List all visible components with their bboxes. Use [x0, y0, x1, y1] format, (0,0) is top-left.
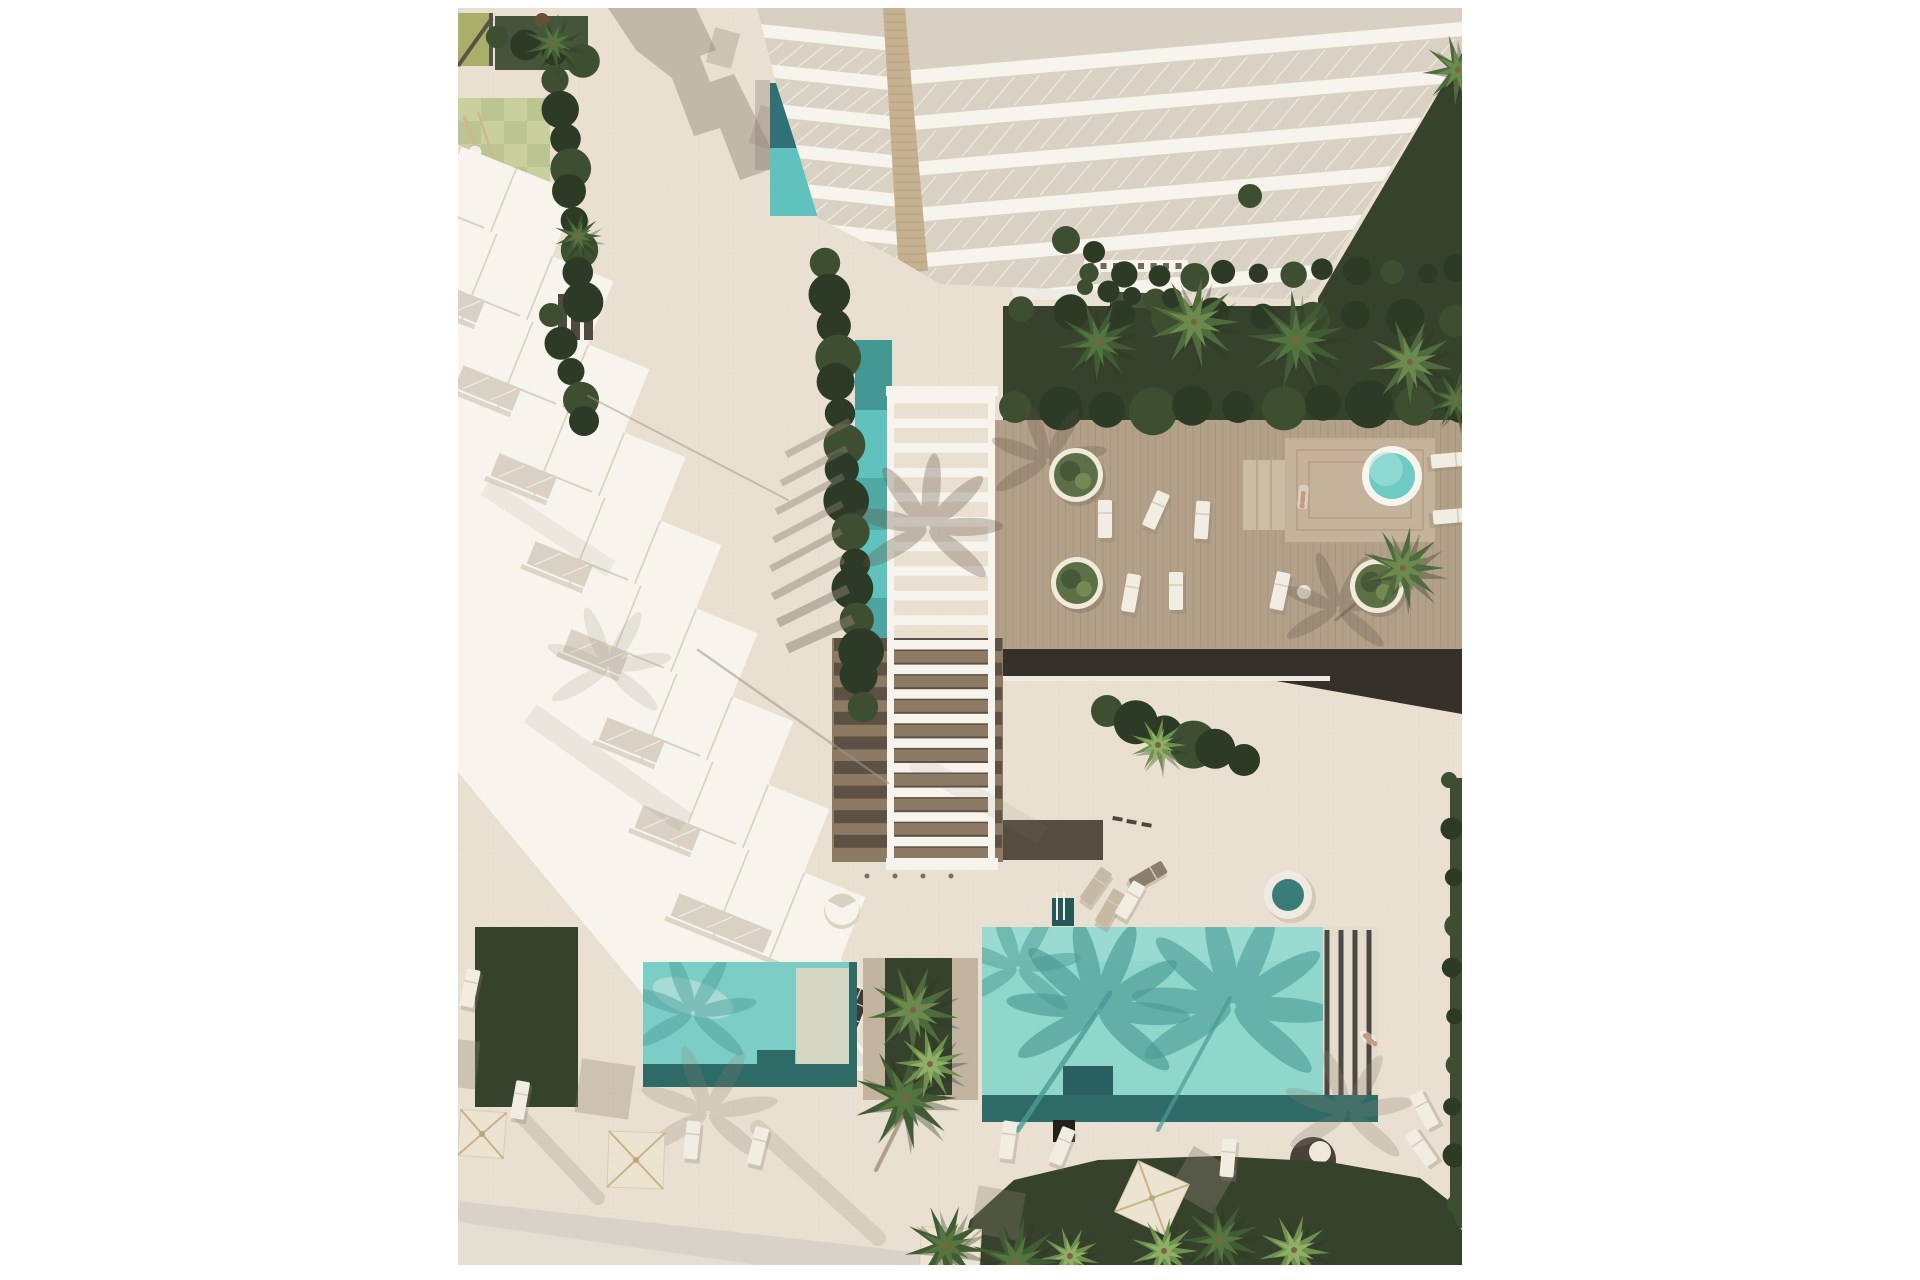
pool-dark-edge	[849, 962, 857, 1087]
palm-crown	[1293, 337, 1299, 343]
sun-lounger	[1169, 572, 1186, 614]
spa-pool-reflection	[1369, 452, 1403, 486]
hedge-bush	[832, 567, 874, 609]
pool-dark-edge	[643, 1064, 857, 1087]
deck-edge-curb	[992, 676, 1330, 681]
lounger-bed	[1169, 572, 1183, 610]
palm-crown	[1067, 1253, 1073, 1259]
palm-crown	[1400, 565, 1406, 571]
hedge-bush	[539, 303, 563, 327]
aerial-rendering	[458, 8, 1462, 1265]
palm-crown	[1191, 319, 1197, 325]
hedge-bush	[1180, 263, 1209, 292]
round-daybed	[824, 891, 860, 929]
palm-crown	[1407, 359, 1413, 365]
palm-crown	[575, 233, 581, 239]
palm-crown	[1217, 1237, 1223, 1243]
sunbather	[1297, 485, 1309, 510]
playground-tile	[527, 121, 550, 144]
hedge-bush	[848, 692, 878, 722]
hedge-bush	[1077, 279, 1093, 295]
planter-plants	[1076, 581, 1092, 597]
balcony-plant	[1238, 184, 1262, 208]
pergola-rung	[887, 738, 995, 748]
hedge-bush	[1442, 958, 1462, 978]
hedge-bush	[1123, 287, 1141, 305]
palm-crown	[1155, 742, 1161, 748]
pergola-rung	[887, 665, 995, 675]
hedge-bush	[1008, 296, 1034, 322]
umbrella	[458, 1109, 507, 1158]
lounger-fold	[1195, 514, 1209, 515]
spa-water	[1272, 879, 1304, 911]
playground-tile	[481, 98, 504, 121]
hedge-bush	[569, 406, 599, 436]
lounger-bed	[1098, 500, 1112, 538]
palm-crown	[927, 1061, 933, 1067]
palm-crown	[1095, 339, 1101, 345]
hedge-bush	[809, 274, 851, 316]
hedge-bush	[1129, 387, 1177, 435]
page-canvas	[0, 0, 1920, 1280]
pergola-rail	[887, 386, 894, 870]
hedge-bush	[563, 282, 604, 323]
pergola-rung	[887, 615, 995, 625]
umbrella-shadow	[575, 1059, 636, 1120]
pergola-rung	[887, 689, 995, 699]
railing-opening	[1138, 263, 1144, 269]
hedge-bush	[558, 358, 585, 385]
hedge-bush	[1443, 1098, 1461, 1116]
hedge-bush	[1418, 264, 1437, 283]
pergola-rung	[887, 812, 995, 822]
hedge-bush	[542, 91, 579, 128]
hedge-bush	[1222, 391, 1254, 423]
playground-tile	[458, 98, 481, 121]
hedge-bush	[1386, 299, 1424, 337]
playground-tile	[527, 144, 550, 167]
playground-tile	[504, 121, 527, 144]
hedge-bush	[1343, 256, 1372, 285]
palm-crown	[1013, 1259, 1019, 1265]
pool-shade	[855, 340, 892, 410]
lounger-bed	[1194, 501, 1211, 540]
hedge-bush	[840, 657, 878, 695]
hedge-bush	[1305, 385, 1341, 421]
pergola-bottom-beam	[886, 858, 998, 870]
hedge-bush	[1446, 1008, 1462, 1024]
hedge-bush	[1149, 265, 1171, 287]
hedge-bush	[1280, 262, 1306, 288]
pergola-rung	[887, 640, 995, 650]
balcony-plant	[1052, 226, 1080, 254]
pergola-rung	[887, 443, 995, 453]
sun-lounger	[1098, 500, 1115, 542]
playground-tile	[504, 98, 527, 121]
pool-steps	[1063, 1066, 1113, 1098]
hedge-bush	[1228, 744, 1260, 776]
pool-step-notch	[757, 1050, 795, 1064]
hedge-bush	[1089, 392, 1125, 428]
hedge-bush	[1341, 301, 1370, 330]
hedge-bush	[1172, 386, 1212, 426]
hedge-bush	[810, 248, 840, 278]
palm-crown	[1291, 1247, 1297, 1253]
palm-crown	[1161, 1248, 1167, 1254]
pergola-rung	[887, 419, 995, 429]
railing-opening	[1176, 263, 1182, 269]
hedge-bush	[1440, 818, 1462, 840]
palm-crown	[1455, 67, 1461, 73]
hedge-bush	[1380, 260, 1404, 284]
pergola-rung	[887, 837, 995, 847]
hedge-bush	[1211, 260, 1235, 284]
planter-plants	[1075, 473, 1091, 489]
pergola-rung	[887, 714, 995, 724]
pool-shelf	[796, 968, 853, 1074]
hedge-bush	[1249, 264, 1268, 283]
umbrella	[607, 1131, 665, 1189]
sun-lounger	[1193, 501, 1213, 544]
deck-steps	[1243, 460, 1285, 530]
post-dot	[865, 874, 870, 879]
palm-crown	[1453, 397, 1459, 403]
hedge-bush	[1345, 380, 1393, 428]
hedge-bush	[817, 363, 855, 401]
hedge-bush	[1262, 386, 1306, 430]
pergola-rung	[887, 394, 995, 404]
lawn-square	[475, 927, 578, 1107]
playground-tile	[504, 144, 527, 167]
post-dot	[893, 874, 898, 879]
hedge-bush	[1311, 258, 1333, 280]
palm-crown	[902, 1095, 908, 1101]
round-chair-cushion	[1309, 1141, 1331, 1163]
palm-crown	[550, 40, 556, 46]
hedge-bush	[1441, 772, 1457, 788]
building-shadow	[755, 80, 770, 170]
pergola-rung	[887, 591, 995, 601]
palm-crown	[943, 1243, 949, 1249]
post-dot	[949, 874, 954, 879]
hedge-bush	[545, 327, 578, 360]
railing-opening	[1101, 263, 1107, 269]
hedge-bush	[541, 66, 568, 93]
post-dot	[921, 874, 926, 879]
hedge-bush	[552, 174, 586, 208]
hedge-bush	[510, 30, 541, 61]
balcony-plant	[1083, 241, 1105, 263]
hedge-bush	[486, 26, 508, 48]
palm-crown	[910, 1007, 916, 1013]
hedge-bush	[1098, 281, 1120, 303]
